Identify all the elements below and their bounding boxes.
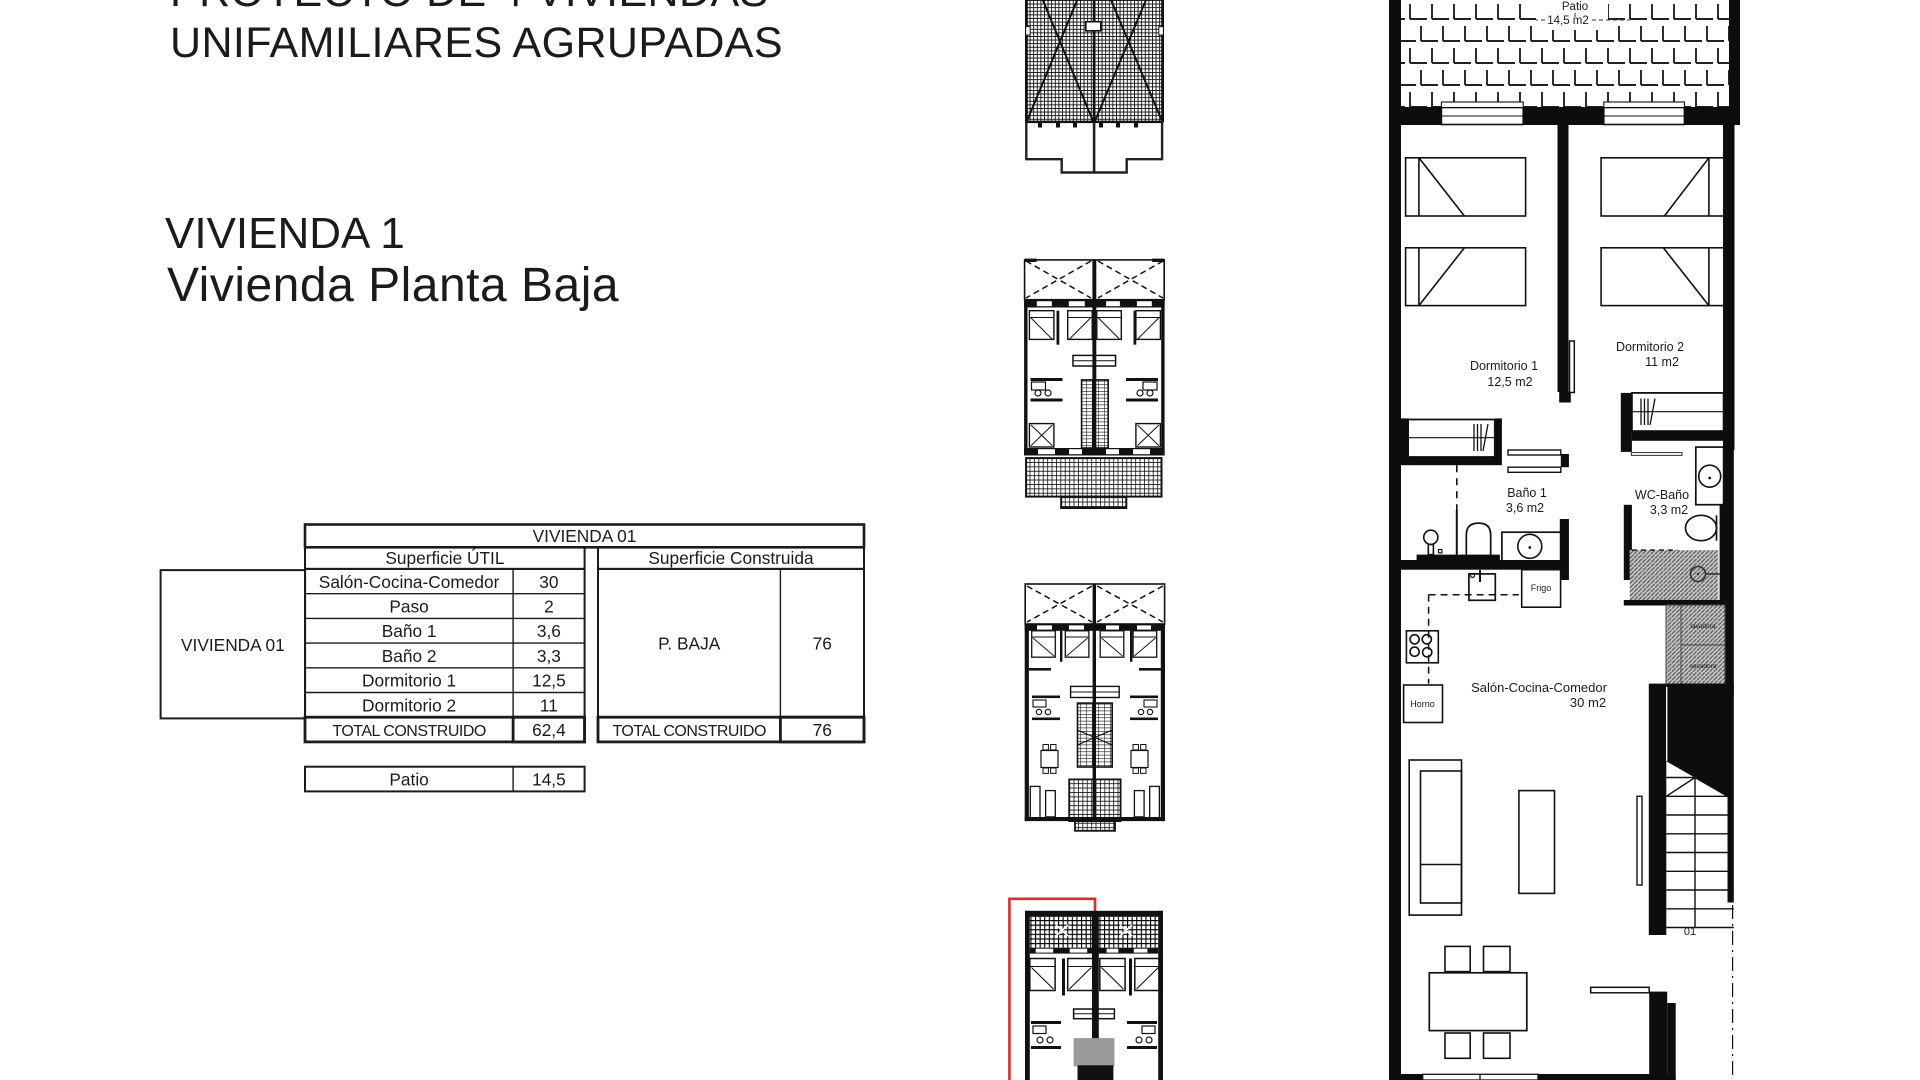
svg-text:3,3 m2: 3,3 m2 <box>1650 503 1688 517</box>
svg-text:Dormitorio 2: Dormitorio 2 <box>362 695 456 715</box>
svg-text:Paso: Paso <box>389 597 428 617</box>
svg-text:Baño 2: Baño 2 <box>382 646 437 666</box>
svg-text:VIVIENDA 01: VIVIENDA 01 <box>533 526 637 546</box>
svg-text:30 m2: 30 m2 <box>1570 695 1606 710</box>
svg-text:14,5 m2: 14,5 m2 <box>1547 15 1589 27</box>
svg-text:Salón-Cocina-Comedor: Salón-Cocina-Comedor <box>1471 680 1608 695</box>
svg-text:01: 01 <box>1684 926 1696 938</box>
svg-text:Salón-Cocina-Comedor: Salón-Cocina-Comedor <box>319 572 500 592</box>
svg-text:Horno: Horno <box>1410 699 1435 709</box>
svg-text:3,6 m2: 3,6 m2 <box>1506 501 1544 515</box>
svg-text:Vivienda Planta Baja: Vivienda Planta Baja <box>167 259 619 312</box>
svg-text:14,5: 14,5 <box>532 770 566 790</box>
svg-text:Dormitorio 1: Dormitorio 1 <box>1470 359 1538 373</box>
svg-text:3,3: 3,3 <box>537 646 561 666</box>
svg-text:Superficie Construida: Superficie Construida <box>648 548 814 568</box>
svg-text:secadora: secadora <box>1690 663 1717 670</box>
svg-text:lavadora: lavadora <box>1691 623 1716 630</box>
svg-text:TOTAL CONSTRUIDO: TOTAL CONSTRUIDO <box>332 723 486 740</box>
svg-text:11: 11 <box>540 695 558 715</box>
svg-text:Patio: Patio <box>389 770 428 790</box>
svg-text:PROYECTO DE 4 VIVIENDAS: PROYECTO DE 4 VIVIENDAS <box>170 0 769 16</box>
svg-text:30: 30 <box>539 572 558 592</box>
svg-text:Dormitorio 1: Dormitorio 1 <box>362 671 456 691</box>
svg-text:12,5: 12,5 <box>532 671 566 691</box>
svg-text:P. BAJA: P. BAJA <box>658 634 721 654</box>
svg-text:VIVIENDA 01: VIVIENDA 01 <box>181 635 285 655</box>
svg-text:Baño 1: Baño 1 <box>1507 486 1547 500</box>
svg-text:2: 2 <box>544 597 554 617</box>
svg-text:WC-Baño: WC-Baño <box>1635 488 1689 502</box>
svg-text:Frigo: Frigo <box>1531 583 1552 593</box>
svg-text:UNIFAMILIARES AGRUPADAS: UNIFAMILIARES AGRUPADAS <box>170 19 783 67</box>
svg-text:Dormitorio 2: Dormitorio 2 <box>1616 340 1684 354</box>
svg-text:Baño 1: Baño 1 <box>382 621 437 641</box>
svg-text:Patio: Patio <box>1562 1 1588 13</box>
svg-text:3,6: 3,6 <box>537 621 561 641</box>
svg-text:VIVIENDA 1: VIVIENDA 1 <box>165 209 405 258</box>
svg-text:Superficie ÚTIL: Superficie ÚTIL <box>385 548 504 568</box>
svg-text:76: 76 <box>813 634 832 654</box>
svg-text:11 m2: 11 m2 <box>1645 355 1679 369</box>
svg-text:76: 76 <box>813 720 832 740</box>
svg-text:12,5 m2: 12,5 m2 <box>1487 375 1532 389</box>
svg-text:62,4: 62,4 <box>532 720 566 740</box>
svg-text:TOTAL CONSTRUIDO: TOTAL CONSTRUIDO <box>612 723 766 740</box>
